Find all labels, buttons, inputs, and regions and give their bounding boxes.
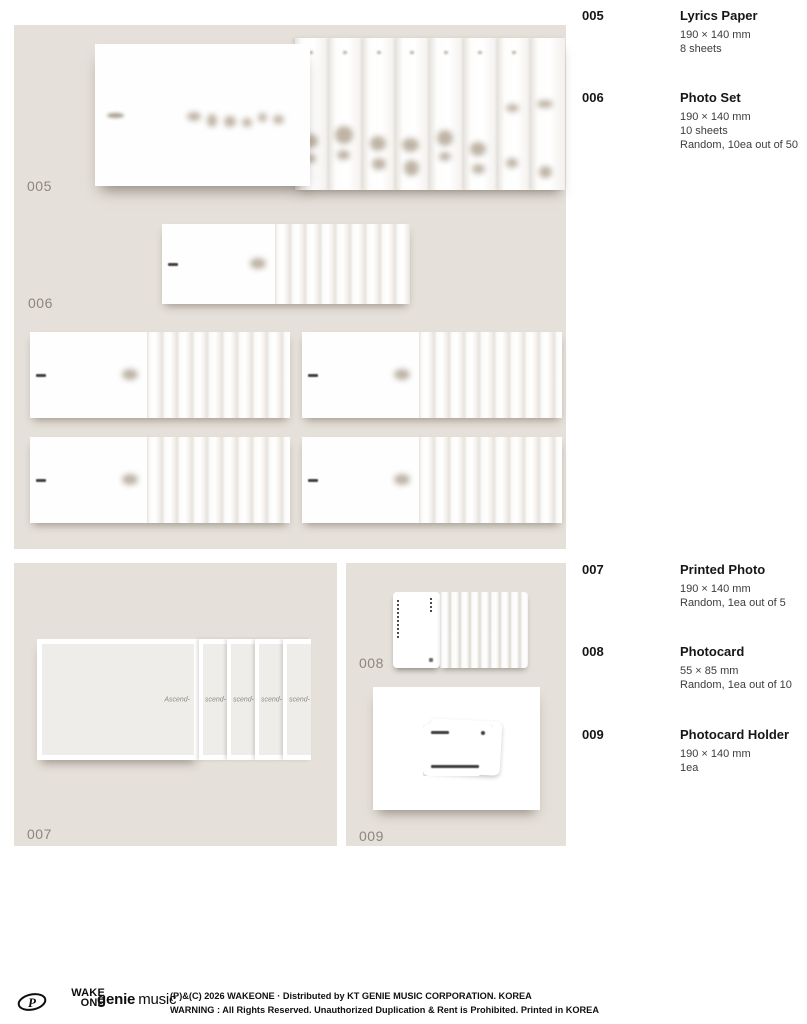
legal-line-2: WARNING : All Rights Reserved. Unauthori…: [170, 1004, 599, 1018]
item-number: 008: [582, 644, 680, 692]
lyric-sheet: [531, 38, 565, 190]
item-size: 190 × 140 mm: [680, 582, 804, 596]
annotation-006: 006 Photo Set 190 × 140 mm 10 sheets Ran…: [582, 90, 804, 152]
figure-label-007: 007: [27, 826, 52, 842]
photo-set-stack: [302, 332, 562, 418]
svg-text:P: P: [28, 995, 37, 1010]
photo-set-fan: [419, 332, 562, 418]
item-number: 006: [582, 90, 680, 152]
photo-set-fan: [147, 332, 290, 418]
legal-text: (P)&(C) 2026 WAKEONE · Distributed by KT…: [170, 990, 599, 1017]
lyric-sheet: [329, 38, 363, 190]
panel-photocard: 008 009: [346, 563, 566, 846]
item-random-note: Random, 1ea out of 5: [680, 596, 804, 610]
item-number: 007: [582, 562, 680, 610]
item-title: Photo Set: [680, 90, 804, 105]
panel-lyrics-and-photoset: 005 006: [14, 25, 566, 549]
item-size: 55 × 85 mm: [680, 664, 804, 678]
photo-set-front: [302, 332, 419, 418]
photocard-stack: [393, 592, 528, 668]
annotation-008: 008 Photocard 55 × 85 mm Random, 1ea out…: [582, 644, 804, 692]
figure-label-005: 005: [27, 178, 52, 194]
lyric-sheet: [430, 38, 464, 190]
photo-set-stack: [30, 437, 290, 523]
photo-set-stack: [30, 332, 290, 418]
photo-set-stack: [302, 437, 562, 523]
photo-set-stack: [162, 224, 410, 304]
lyric-sheet: [464, 38, 498, 190]
item-size: 190 × 140 mm: [680, 110, 804, 124]
printed-photo-edge: scend-: [227, 639, 255, 760]
annotation-005: 005 Lyrics Paper 190 × 140 mm 8 sheets: [582, 8, 804, 56]
item-title: Photocard: [680, 644, 804, 659]
product-spec-page: 005 006: [0, 0, 807, 1024]
item-size: 190 × 140 mm: [680, 747, 804, 761]
printed-photo-front: Ascend-: [37, 639, 199, 760]
lyric-sheet: [396, 38, 430, 190]
item-quantity: 8 sheets: [680, 42, 804, 56]
photo-set-fan: [275, 224, 410, 304]
item-quantity: 1ea: [680, 761, 804, 775]
lyrics-paper-front: [95, 44, 310, 186]
genie-music-logo: geniemusic: [97, 991, 176, 1008]
lyrics-paper-fan: [295, 38, 565, 190]
panel-printed-photo: Ascend- scend- scend- scend- scend- 007: [14, 563, 337, 846]
photo-set-front: [302, 437, 419, 523]
printed-photo-edge: scend-: [255, 639, 283, 760]
photocard-front: [393, 592, 440, 668]
item-random-note: Random, 10ea out of 50: [680, 138, 804, 152]
item-number: 005: [582, 8, 680, 56]
item-quantity: 10 sheets: [680, 124, 804, 138]
printed-photo-fan: Ascend- scend- scend- scend- scend-: [37, 639, 311, 760]
printed-photo-edge: scend-: [283, 639, 311, 760]
annotation-007: 007 Printed Photo 190 × 140 mm Random, 1…: [582, 562, 804, 610]
figure-label-008: 008: [359, 655, 384, 671]
figure-label-006: 006: [28, 295, 53, 311]
figure-label-009: 009: [359, 828, 384, 844]
footer: P WAKE ONE geniemusic (P)&(C) 2026 WAKEO…: [0, 985, 807, 1024]
item-title: Printed Photo: [680, 562, 804, 577]
legal-line-1: (P)&(C) 2026 WAKEONE · Distributed by KT…: [170, 990, 599, 1004]
printed-photo-caption: Ascend-: [164, 696, 190, 703]
item-title: Lyrics Paper: [680, 8, 804, 23]
photo-set-front: [162, 224, 275, 304]
lyric-sheet: [363, 38, 397, 190]
photo-set-fan: [147, 437, 290, 523]
printed-photo-edge: scend-: [199, 639, 227, 760]
artist-monogram-logo-icon: P: [17, 991, 47, 1013]
photo-set-fan: [419, 437, 562, 523]
photo-set-front: [30, 437, 147, 523]
photocard-holder-card: [373, 687, 540, 810]
item-random-note: Random, 1ea out of 10: [680, 678, 804, 692]
photocard-fan: [440, 592, 528, 668]
item-size: 190 × 140 mm: [680, 28, 804, 42]
photo-set-front: [30, 332, 147, 418]
photocard-holder-front: [423, 724, 493, 776]
item-title: Photocard Holder: [680, 727, 804, 742]
annotation-009: 009 Photocard Holder 190 × 140 mm 1ea: [582, 727, 804, 775]
item-number: 009: [582, 727, 680, 775]
lyric-sheet: [498, 38, 532, 190]
